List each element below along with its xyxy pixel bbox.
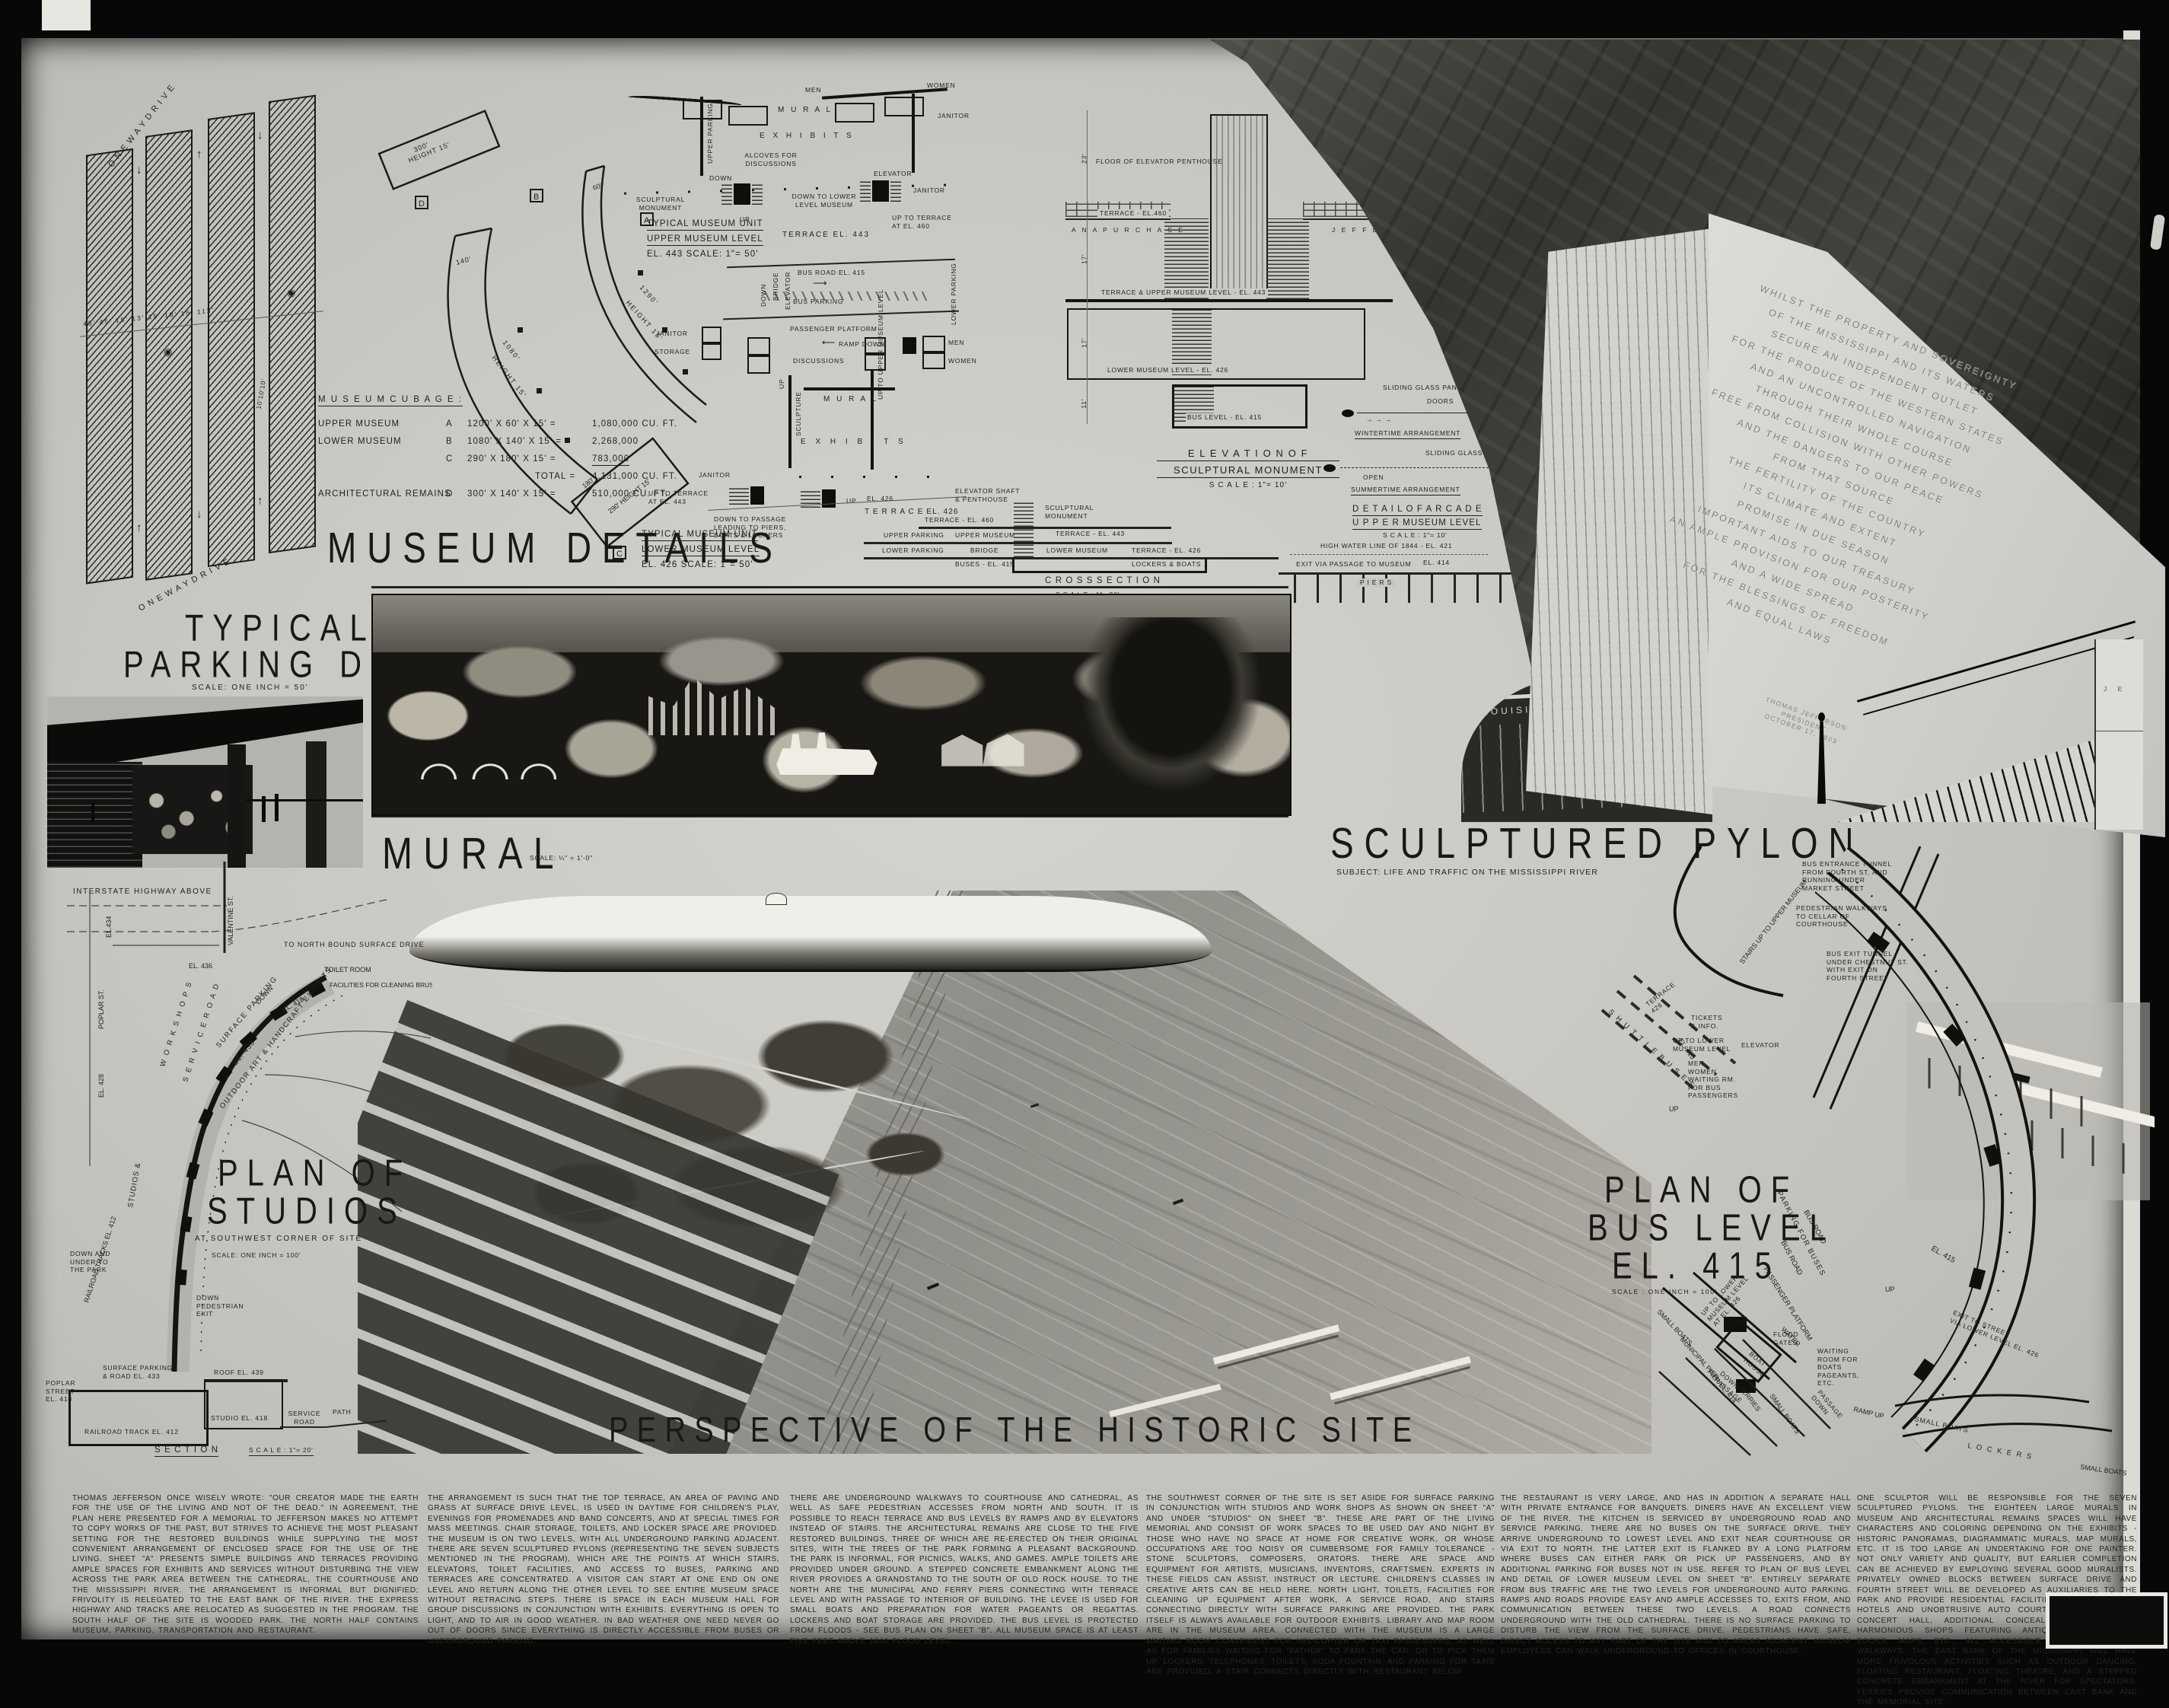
turnaround-dot: ◉ (164, 347, 173, 356)
path-line (326, 1420, 387, 1428)
label: UP TO TERRACE AT EL. 443 (648, 489, 717, 505)
svg-text:1080': 1080' (501, 339, 521, 362)
service-rooms (835, 103, 874, 123)
label: LOWER PARKING (950, 263, 958, 325)
plan-title: TYPICAL MUSEUM UNIT (647, 218, 763, 231)
label: BUS ROAD EL. 415 (798, 269, 865, 277)
label: ALCOVES FOR DISCUSSIONS (729, 151, 813, 167)
label: JANITOR (938, 112, 970, 120)
text-column-2: THE ARRANGEMENT IS SUCH THAT THE TOP TER… (428, 1493, 779, 1646)
cubage-cell: B (446, 436, 453, 447)
label: PEDESTRIAN WALKWAYS TO CELLAR OF COURTHO… (1796, 904, 1887, 929)
lane-arrow: ↑ (136, 524, 143, 533)
label: DISCUSSIONS (793, 357, 844, 365)
stair-core (822, 489, 836, 508)
room-w (747, 355, 770, 374)
label: BRIDGE (970, 546, 999, 555)
label: FLOOD GATES (1773, 1330, 1798, 1346)
label: J E F F E (1332, 226, 1379, 234)
label: BRIDGE (772, 272, 780, 301)
label: E X H I B I T S (760, 132, 855, 141)
sheet-corner-card (2046, 1592, 2167, 1649)
pavilion-letters: J E (2104, 685, 2126, 693)
stair-core (734, 183, 750, 205)
label: EL. 414 (1423, 559, 1450, 567)
label: UP TO LOWER MUSEUM LEVEL (1673, 1037, 1731, 1053)
room-j (702, 327, 721, 343)
stall-dimension: 10'10'10' (255, 378, 268, 410)
label: TICKETS & INFO. (1691, 1014, 1723, 1030)
cubage-cell: 300' X 140' X 15' = (467, 489, 556, 499)
cubage-cell: UPPER MUSEUM (318, 419, 400, 429)
label: STORAGE (655, 348, 690, 356)
svg-text:W O R K S H O P S: W O R K S H O P S (158, 980, 194, 1068)
svg-text:D: D (419, 199, 425, 209)
section-title: S C A L E : 1"= 20' (249, 1446, 314, 1456)
stair-core (750, 486, 764, 505)
stair-hatch (860, 180, 871, 202)
svg-text:UP: UP (1885, 1286, 1895, 1293)
figure (91, 803, 94, 823)
cubage-cell: ARCHITECTURAL REMAINS (318, 489, 451, 499)
room-m (922, 336, 945, 352)
label: DOWN (709, 174, 732, 183)
label: WOMEN (948, 357, 977, 365)
svg-text:UP: UP (1669, 1105, 1679, 1113)
cubage-heading: M U S E U M C U B A G E : (318, 394, 463, 406)
label: M U R A L (823, 395, 878, 404)
penthouse (1210, 114, 1268, 296)
label: BUSES - EL. 415 (955, 560, 1014, 569)
pier-hatch (1164, 218, 1209, 299)
road-arrow: ⟶ (813, 279, 827, 288)
parking-interior-rendering (47, 696, 363, 868)
service-rooms (728, 106, 768, 126)
high-water-line (1290, 554, 1488, 555)
label: SCULPTURAL MONUMENT (1045, 504, 1113, 520)
plan-wall (788, 375, 791, 468)
label: SCULPTURAL MONUMENT (630, 196, 691, 212)
pylon-subject: SUBJECT: LIFE AND TRAFFIC ON THE MISSISS… (1336, 868, 1598, 877)
label: LOCKERS & BOATS (1132, 560, 1201, 569)
plan-title: TYPICAL MUSEUM UNIT (642, 529, 758, 541)
elevation-title: E L E V A T I O N O F (1157, 447, 1339, 461)
text-column-5: THE RESTAURANT IS VERY LARGE, AND HAS IN… (1501, 1493, 1851, 1657)
terrace-pavilion-dome (766, 893, 787, 905)
svg-text:HEIGHT 15': HEIGHT 15' (407, 141, 451, 164)
label: ELEVATOR (784, 272, 792, 310)
label: MEN WOMEN WAITING RM. FOR BUS PASSENGERS (1688, 1060, 1738, 1100)
plan-title: EL. 426 SCALE: 1"= 50' (642, 559, 753, 570)
svg-text:VALENTINE ST.: VALENTINE ST. (227, 896, 234, 945)
room-c (702, 343, 721, 360)
label: TERRACE EL. 443 (782, 231, 870, 240)
label: ROOF EL. 439 (214, 1369, 264, 1377)
plan-studios-scale: SCALE: ONE INCH = 100' (212, 1251, 301, 1260)
section-box (68, 1390, 209, 1446)
mural-rendering (371, 594, 1292, 816)
plan-wall (871, 371, 874, 470)
label: FLOOR OF ELEVATOR PENTHOUSE (1096, 158, 1223, 166)
svg-text:L O C K E R S: L O C K E R S (1967, 1442, 2033, 1461)
label: ELEVATOR (1741, 1041, 1779, 1050)
cubage-cell: 1200' X 60' X 15' = (467, 419, 556, 429)
text-column-3: THERE ARE UNDERGROUND WALKWAYS TO COURTH… (790, 1493, 1139, 1646)
typical-parking-scale: SCALE: ONE INCH = 50' (192, 684, 309, 693)
label: HIGH WATER LINE OF 1844 - EL. 421 (1320, 542, 1452, 550)
label: STUDIO EL. 418 (211, 1414, 268, 1423)
stair-core (872, 180, 889, 202)
lane-arrow: ↑ (196, 150, 203, 159)
label: SERVICE ROAD (285, 1410, 323, 1426)
svg-text:HEIGHT 15': HEIGHT 15' (490, 354, 528, 400)
cubage-cell: D (446, 489, 453, 499)
elevation-title: SCULPTURAL MONUMENT (1157, 464, 1339, 478)
label: UPPER PARKING (884, 531, 944, 540)
label: WOMEN (927, 81, 956, 90)
svg-text:POPLAR ST.: POPLAR ST. (97, 989, 105, 1029)
label: UP TO TERRACE AT EL. 460 (892, 214, 968, 230)
mural-bridge-arches (409, 722, 556, 779)
stair-hatch (890, 180, 901, 202)
svg-text:EL. 436: EL. 436 (189, 962, 212, 970)
parking-diagram: ↓ ↑ ↓ ↑ ↓ ↑ ◉ ◉ 45' 45' 15' 13' 15' 18' … (72, 91, 331, 617)
figure (262, 796, 266, 822)
label: TERRACE & UPPER MUSEUM LEVEL - EL. 443 (1099, 288, 1268, 297)
site-perspective-rendering (358, 891, 1651, 1454)
plan-studios-title-1: PLAN OF (218, 1154, 412, 1193)
el443-line (1065, 299, 1393, 302)
label: UP TO UPPER MUSEUM LEVEL (877, 384, 885, 400)
plan-of-bus-level-map: S H U T T L E B U S E S EL. 415 STAIRS U… (1587, 846, 2155, 1486)
svg-text:TO NORTH BOUND SURFACE DRI: TO NORTH BOUND SURFACE DRIVE (284, 941, 425, 948)
ramp-arrow: ⟵ (822, 339, 836, 347)
perspective-title: PERSPECTIVE OF THE HISTORIC SITE (609, 1413, 1421, 1450)
label: SCULPTURE (795, 391, 803, 436)
svg-text:EL. 415: EL. 415 (1930, 1244, 1957, 1265)
label: WAITING ROOM FOR BOATS PAGEANTS, ETC. (1817, 1347, 1859, 1388)
pier-hatch (1266, 218, 1309, 299)
plan-bus-scale: SCALE : ONE INCH = 100' (1612, 1288, 1718, 1296)
road-edge (727, 259, 955, 268)
plan-bus-title-2: BUS LEVEL (1588, 1209, 1836, 1248)
mural-tree (1079, 617, 1263, 792)
label: JANITOR (913, 186, 945, 195)
label: RAILROAD TRACK EL. 412 (84, 1428, 179, 1436)
label: TERRACE - EL. 426 (1132, 546, 1201, 555)
photo-tab (42, 0, 91, 30)
service-rooms (884, 97, 924, 116)
label: ELEVATOR (874, 170, 912, 178)
svg-text:STUDIOS &: STUDIOS & (126, 1162, 142, 1208)
sculptured-pylon-rendering: WHILST THE PROPERTY AND SOVEREIGNTY OF T… (1514, 84, 2169, 837)
pavilion-line (2096, 731, 2143, 731)
svg-text:SMALL BOATS: SMALL BOATS (2080, 1463, 2127, 1477)
label: JANITOR (699, 471, 731, 480)
label: DOWN (760, 284, 768, 307)
cubage-cell: 1080' X 140' X 15' = (467, 436, 562, 447)
label: BUS ENTRANCE TUNNEL FROM FOURTH ST. AND … (1802, 860, 1892, 892)
shaft-hatch (1014, 501, 1034, 557)
terrace-460-line (1065, 218, 1170, 220)
label: DOWN AND UNDER TO THE PARK (70, 1250, 110, 1274)
plan-title: UPPER MUSEUM LEVEL (647, 234, 763, 246)
plan-of-studios-map: INTERSTATE HIGHWAY ABOVE EL.434 EL. 436 … (67, 846, 432, 1379)
label: MEN (805, 86, 821, 94)
svg-text:RAMP UP: RAMP UP (1853, 1405, 1885, 1420)
typical-parking-title-1: TYPICAL (185, 609, 376, 648)
turnaround-dot: ◉ (287, 288, 296, 298)
cubage-cell: C (446, 454, 453, 464)
label: TERRACE - EL.460 (1097, 209, 1169, 218)
label: UP (846, 497, 856, 505)
studios-section-drawing: SURFACE PARKING & ROAD EL. 433 RAILROAD … (65, 1362, 392, 1458)
stair-hatch (752, 183, 763, 205)
label: OPEN (1363, 473, 1384, 482)
plan-wall (700, 97, 703, 176)
plan-studios-subtitle: AT SOUTHWEST CORNER OF SITE (195, 1235, 362, 1244)
lane-arrow: ↓ (136, 166, 143, 175)
column-diamond (1342, 409, 1354, 417)
plan-title: LOWER MUSEUM LEVEL (642, 544, 760, 556)
text-column-1: THOMAS JEFFERSON ONCE WISELY WROTE: "OUR… (72, 1493, 419, 1636)
label: LOWER PARKING (882, 546, 944, 555)
lane-arrow: ↓ (196, 510, 203, 519)
svg-text:EL.434: EL.434 (105, 916, 113, 938)
label: UP (778, 379, 786, 389)
stair-hatch (721, 183, 732, 205)
section-title: S E C T I O N (154, 1445, 218, 1457)
room-m (747, 337, 770, 355)
room-w (922, 352, 945, 369)
plan-wall (912, 94, 915, 173)
cubage-cell: LOWER MUSEUM (318, 436, 402, 447)
cubage-cell: A (446, 419, 453, 429)
label: DOORS (1427, 397, 1454, 406)
lane-arrow: ↑ (257, 496, 264, 505)
label: UPPER MUSEUM (955, 531, 1015, 540)
figure (275, 794, 279, 821)
text-column-4: THE SOUTHWEST CORNER OF THE SITE IS SET … (1146, 1493, 1495, 1677)
label: EL. 426 (867, 495, 893, 503)
right-pavilion: J E (2094, 639, 2143, 830)
label: E X H I B I T S (801, 438, 907, 447)
label: JANITOR (656, 330, 688, 338)
arrow: → → → (1366, 416, 1392, 424)
label: LOWER MUSEUM (1046, 546, 1108, 555)
label: DOWN TO LOWER LEVEL MUSEUM (782, 193, 866, 209)
label: M U R A L (778, 106, 833, 115)
cubage-cell: 290' X 180' X 15' = (467, 454, 556, 464)
mural-top-rule (371, 586, 1288, 588)
road-edge (723, 311, 959, 320)
label: TERRACE - EL. 443 (1056, 530, 1125, 538)
competition-board-photo: { "titles": { "museum_details": "MUSEUM … (0, 0, 2169, 1644)
parking-bar (86, 148, 133, 585)
label: EXIT VIA PASSAGE TO MUSEUM (1296, 560, 1412, 569)
plan-bus-title-3: EL. 415 (1612, 1247, 1781, 1286)
cubage-cell: TOTAL = (535, 471, 575, 482)
mural-scale: SCALE: ¼" = 1'-0" (530, 854, 593, 862)
svg-text:OUTDOOR ART & HANDCRAFT EX: OUTDOOR ART & HANDCRAFT EXHIBITS (218, 965, 334, 1111)
label: LOWER MUSEUM LEVEL - EL. 426 (1105, 366, 1231, 374)
svg-text:SMALL BOATS: SMALL BOATS (1768, 1392, 1801, 1435)
svg-text:FACILITIES FOR CLEANING BRUSHE: FACILITIES FOR CLEANING BRUSHES, ETC., A… (330, 981, 432, 989)
label: P I E R S (1357, 578, 1395, 587)
svg-text:EL. 428: EL. 428 (97, 1074, 105, 1098)
svg-text:B: B (533, 193, 539, 202)
label: UPPER PARKING (706, 103, 715, 164)
lane-arrow: ↓ (257, 131, 264, 140)
grade-line (280, 1426, 326, 1428)
plan-bus-title-1: PLAN OF (1604, 1171, 1798, 1209)
mural-bottom-rule (371, 816, 1288, 817)
parking-bar (208, 112, 255, 567)
label: DOWN PEDESTRIAN EXIT (196, 1294, 244, 1318)
dim-line (1087, 110, 1088, 424)
label: SURFACE PARKING & ROAD EL. 433 (103, 1364, 173, 1380)
figure-head (1818, 712, 1825, 722)
label: WINTERTIME ARRANGEMENT (1355, 429, 1460, 439)
colonnade-dots (799, 476, 936, 478)
label: PASSENGER PLATFORM (790, 325, 877, 333)
elevator-core (903, 337, 916, 354)
label: PATH (333, 1408, 352, 1416)
parking-bar (269, 95, 316, 554)
label: BUS EXIT TUNNEL UNDER CHESTNUT ST. WITH … (1827, 950, 1909, 982)
label: MEN (948, 339, 964, 347)
stair-hatch (729, 486, 749, 505)
column-diamond (1323, 464, 1336, 472)
svg-text:140': 140' (455, 255, 473, 266)
svg-text:INTERSTATE HIGHWAY ABOVE: INTERSTATE HIGHWAY ABOVE (73, 887, 212, 896)
plan-title: EL. 443 SCALE: 1"= 50' (647, 249, 759, 260)
plan-studios-title-2: STUDIOS (207, 1192, 406, 1231)
glass-line (1340, 467, 1492, 468)
terrace-460-line (919, 527, 1171, 529)
label: BUS LEVEL - EL. 415 (1186, 413, 1263, 422)
label: TERRACE - EL. 460 (925, 516, 994, 524)
